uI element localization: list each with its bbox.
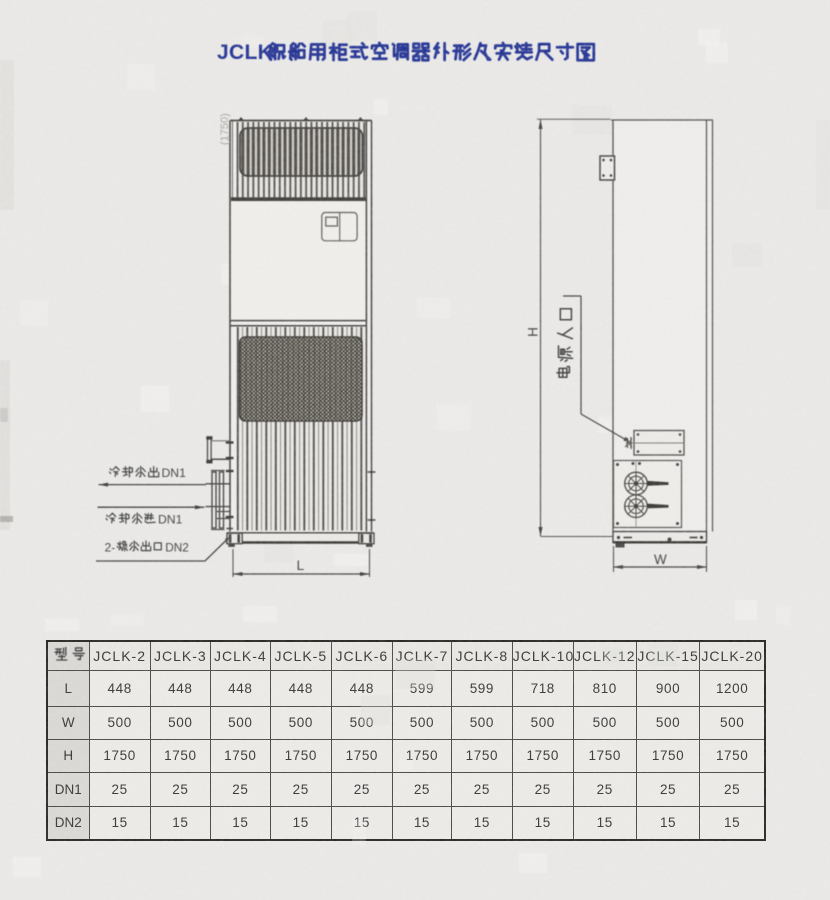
svg-text:2-: 2- <box>105 541 116 555</box>
svg-text:H: H <box>526 327 541 337</box>
svg-text:L: L <box>297 557 305 573</box>
svg-text:W: W <box>654 552 667 567</box>
svg-text:DN1: DN1 <box>162 466 187 480</box>
svg-text:(1750): (1750) <box>219 113 231 145</box>
svg-text:DN2: DN2 <box>165 541 189 555</box>
svg-text:JCLK: JCLK <box>217 41 273 64</box>
svg-text:DN1: DN1 <box>158 513 183 527</box>
